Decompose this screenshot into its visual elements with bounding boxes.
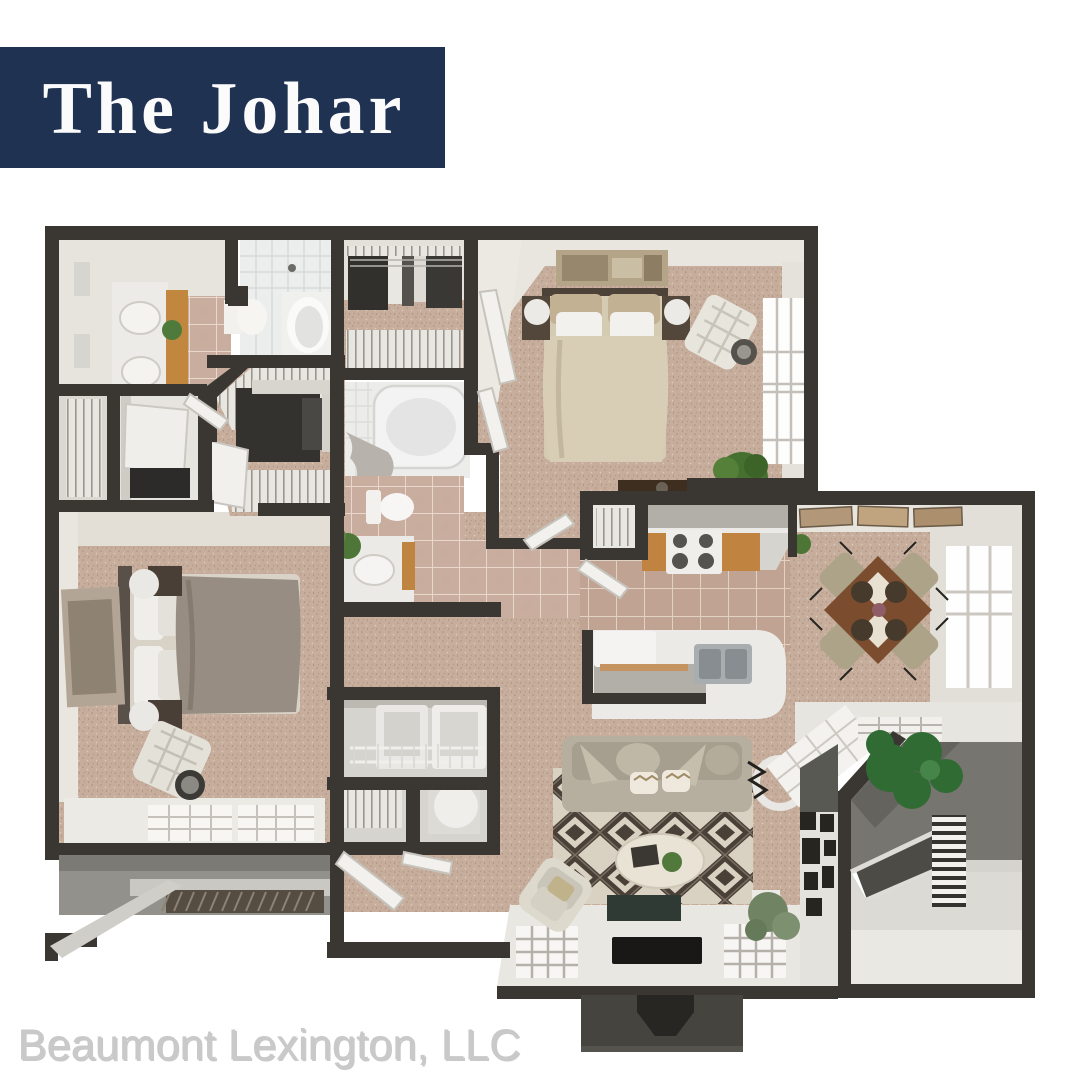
svg-text:The Johar: The Johar — [43, 68, 406, 150]
svg-text:Beaumont Lexington, LLC: Beaumont Lexington, LLC — [18, 1022, 521, 1070]
